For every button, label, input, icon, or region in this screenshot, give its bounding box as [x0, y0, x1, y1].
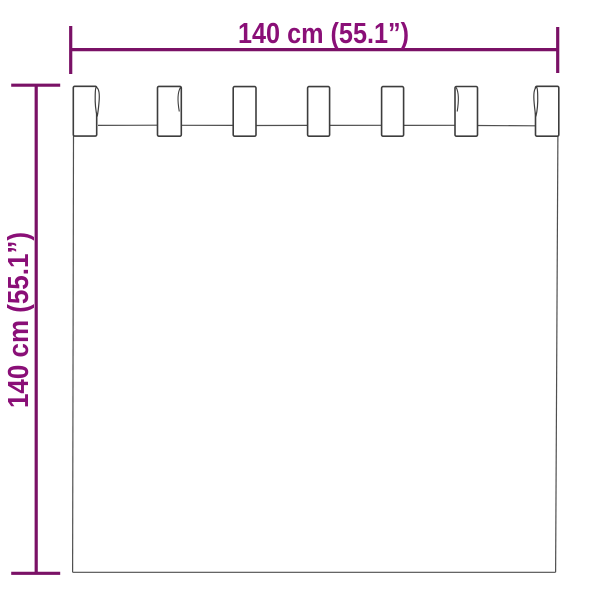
- svg-text:140 cm (55.1”): 140 cm (55.1”): [238, 18, 409, 50]
- svg-text:140 cm (55.1”): 140 cm (55.1”): [3, 232, 35, 408]
